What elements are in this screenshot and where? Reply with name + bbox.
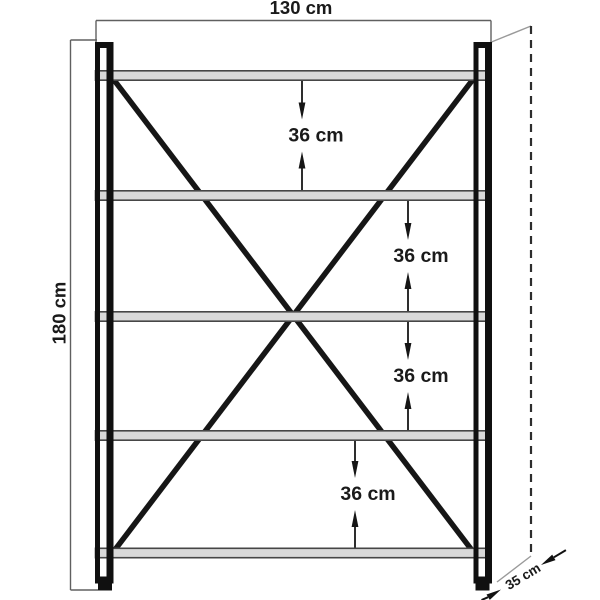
gap3-arrowhead-down-icon xyxy=(405,343,412,360)
shelf-4 xyxy=(96,431,492,440)
right-post-top-cap xyxy=(474,42,493,48)
shelf-5 xyxy=(96,548,492,557)
width-dimension xyxy=(96,21,491,44)
shelf-2 xyxy=(96,191,492,200)
depth-label: 35 cm xyxy=(503,560,544,593)
gap4-label: 36 cm xyxy=(340,483,395,505)
depth-arrowhead-lower-icon xyxy=(487,590,502,600)
depth-top-edge xyxy=(492,26,532,42)
gap1-arrowhead-up-icon xyxy=(299,152,306,169)
left-post-front-bar xyxy=(95,42,100,584)
shelving-diagram: 36 cm 36 cm 36 cm 36 cm 35 cm 130 cm 180… xyxy=(0,0,600,600)
gap2-arrowhead-up-icon xyxy=(405,272,412,289)
left-post-back-bar xyxy=(107,42,114,584)
shelving-diagram-canvas: 36 cm 36 cm 36 cm 36 cm 35 cm 130 cm 180… xyxy=(0,0,600,600)
depth-arrowhead-upper-icon xyxy=(541,555,556,565)
width-label: 130 cm xyxy=(270,0,333,18)
right-post-foot xyxy=(476,582,490,591)
gap4-arrowhead-up-icon xyxy=(352,510,359,527)
right-post-front-bar xyxy=(474,42,479,584)
right-post-back-bar xyxy=(485,42,492,584)
left-post-foot xyxy=(98,582,112,591)
height-dimension xyxy=(71,40,99,590)
gap2-label: 36 cm xyxy=(393,245,448,267)
shelf-1 xyxy=(96,71,492,80)
depth-arrow-tail-upper xyxy=(554,550,566,557)
gap2-arrowhead-down-icon xyxy=(405,223,412,240)
gap1-arrowhead-down-icon xyxy=(299,103,306,120)
gap3-label: 36 cm xyxy=(393,365,448,387)
gap3-arrowhead-up-icon xyxy=(405,392,412,409)
left-post-top-cap xyxy=(95,42,114,48)
depth-perspective xyxy=(492,26,532,582)
gap1-label: 36 cm xyxy=(288,125,343,147)
shelf-3 xyxy=(96,312,492,321)
height-label: 180 cm xyxy=(49,282,70,345)
gap4-arrowhead-down-icon xyxy=(352,461,359,478)
